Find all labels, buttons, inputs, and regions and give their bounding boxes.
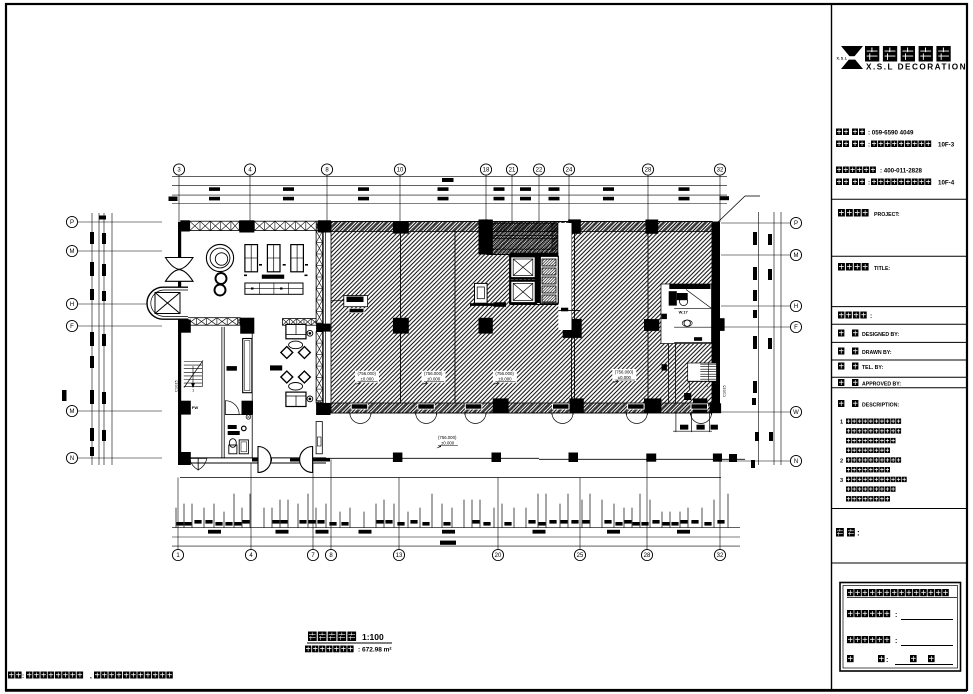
svg-text:10F-4: 10F-4 [938, 180, 955, 187]
svg-text:21: 21 [509, 168, 516, 174]
svg-text:DESCRIPTION:: DESCRIPTION: [862, 403, 899, 409]
svg-text:1: 1 [840, 420, 843, 426]
svg-text::: : [886, 657, 888, 664]
svg-text:13: 13 [396, 553, 403, 559]
svg-text:DRAWN BY:: DRAWN BY: [862, 350, 892, 356]
svg-text:DESIGNED BY:: DESIGNED BY: [862, 332, 899, 338]
svg-text:P: P [70, 220, 74, 226]
svg-text:F: F [794, 325, 798, 331]
svg-text:P: P [794, 221, 798, 227]
svg-text::: : [895, 612, 897, 619]
svg-text:(756.000): (756.000) [438, 435, 457, 440]
svg-text:32: 32 [717, 168, 724, 174]
svg-text:M: M [794, 253, 799, 259]
svg-text:: 059-6590 4049: : 059-6590 4049 [868, 130, 914, 137]
svg-text:20: 20 [495, 553, 502, 559]
svg-text:: 400-011-2828: : 400-011-2828 [880, 168, 923, 175]
svg-text::: : [870, 313, 872, 320]
svg-text:10: 10 [397, 168, 404, 174]
svg-text::: : [868, 142, 870, 149]
svg-text::: : [868, 180, 870, 187]
svg-text:2: 2 [840, 459, 843, 465]
svg-text:PROJECT:: PROJECT: [874, 212, 900, 218]
svg-text:N: N [794, 459, 798, 465]
svg-text:X.S.L: X.S.L [837, 56, 848, 60]
svg-text:C1015: C1015 [174, 379, 179, 392]
svg-text:(756.000): (756.000) [615, 370, 634, 375]
svg-text::: : [895, 638, 897, 645]
svg-text:3: 3 [840, 478, 843, 484]
svg-text:(756.000): (756.000) [424, 371, 443, 376]
svg-text:1:100: 1:100 [362, 632, 384, 642]
svg-text:W: W [793, 410, 799, 416]
svg-text:M: M [70, 409, 75, 415]
svg-text:±0.000: ±0.000 [361, 377, 375, 382]
svg-text:TITLE:: TITLE: [874, 266, 890, 272]
svg-text:(756.000): (756.000) [495, 371, 514, 376]
svg-text:±0.000: ±0.000 [427, 377, 441, 382]
svg-text:22: 22 [536, 168, 543, 174]
svg-text:M: M [70, 249, 75, 255]
svg-text:APPROVED BY:: APPROVED BY: [862, 382, 901, 388]
svg-text:±0.000: ±0.000 [618, 375, 632, 380]
svg-text:28: 28 [645, 168, 652, 174]
svg-text:TEL. BY:: TEL. BY: [862, 365, 884, 371]
svg-text:±0.000: ±0.000 [498, 377, 512, 382]
svg-text:10F-3: 10F-3 [938, 142, 955, 149]
svg-text:(756.000): (756.000) [358, 371, 377, 376]
svg-text:H: H [794, 304, 798, 310]
svg-text:F: F [70, 324, 74, 330]
svg-text:,: , [90, 673, 92, 680]
svg-text:18: 18 [483, 168, 490, 174]
svg-text:FW: FW [192, 405, 198, 410]
svg-text::: : [22, 673, 24, 680]
svg-text:25: 25 [577, 553, 584, 559]
svg-text:32: 32 [717, 553, 724, 559]
svg-text:H: H [70, 302, 74, 308]
svg-text:±0.000: ±0.000 [441, 440, 455, 445]
svg-text:28: 28 [644, 553, 651, 559]
svg-text:: 672.98 m²: : 672.98 m² [358, 647, 392, 654]
svg-text::: : [857, 529, 860, 538]
svg-text:W.17: W.17 [679, 310, 689, 315]
svg-text:C1015: C1015 [722, 384, 727, 397]
svg-text:24: 24 [566, 168, 573, 174]
svg-text:N: N [70, 456, 74, 462]
svg-text:X.S.L DECORATION: X.S.L DECORATION [866, 63, 967, 72]
